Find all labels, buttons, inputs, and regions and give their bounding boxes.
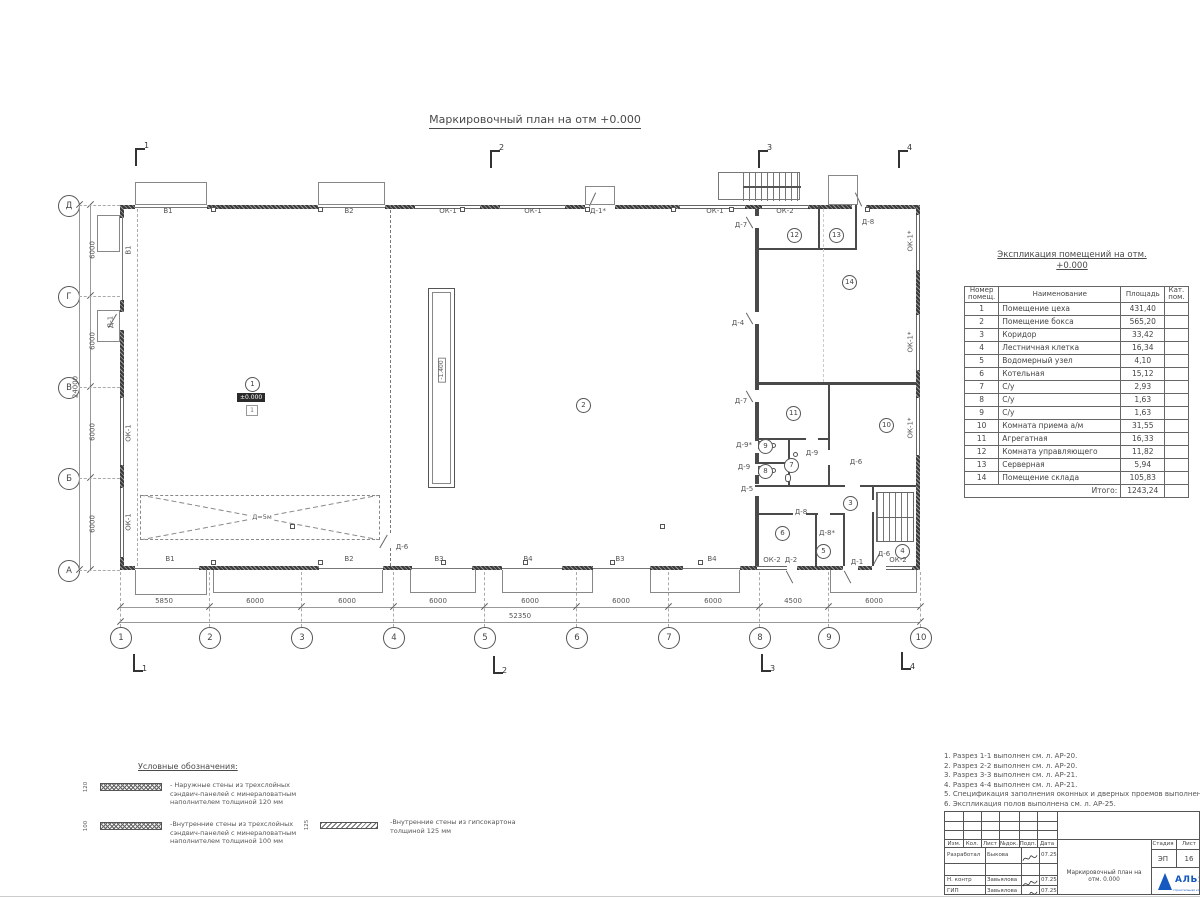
inspection-pit-inner — [432, 292, 451, 484]
note-item: 1. Разрез 1-1 выполнен см. л. АР-20. — [944, 752, 1200, 762]
opening-label: ОК-1 — [126, 513, 133, 530]
gate — [122, 218, 123, 300]
opening-label: ОК-1* — [908, 231, 915, 252]
wall-segment — [757, 513, 793, 515]
cell-num: 13 — [965, 458, 999, 471]
total-value: 1243,24 — [1121, 484, 1165, 497]
window — [757, 566, 787, 570]
column-marker — [671, 207, 676, 212]
cell-area: 105,83 — [1121, 471, 1165, 484]
legend-dim: 100 — [83, 821, 89, 832]
opening-label: Д-5 — [741, 486, 753, 493]
wall-segment — [207, 205, 318, 209]
opening-label: Д-1* — [590, 208, 606, 215]
cell-name: Комната приема а/м — [999, 419, 1121, 432]
wall-segment — [755, 382, 916, 385]
tb-col-label: №док. — [1000, 841, 1018, 847]
dashed-line — [137, 209, 138, 566]
opening-label: В3 — [615, 556, 624, 563]
wall-segment — [866, 205, 920, 209]
tb-line — [945, 863, 1057, 864]
legend-swatch-ext-wall — [100, 783, 162, 791]
wall-segment — [755, 324, 759, 390]
tb-name: Быкова — [987, 852, 1008, 858]
opening-label: ОК-1 — [706, 208, 723, 215]
dim-line-total — [120, 622, 920, 623]
room-number: 8 — [758, 464, 773, 479]
grid-extension — [79, 478, 120, 479]
wall-segment — [120, 330, 124, 398]
grid-bubble-col: 6 — [566, 627, 588, 649]
grid-extension — [920, 572, 921, 627]
grid-extension — [79, 205, 120, 206]
tb-line — [985, 847, 986, 895]
cell-num: 4 — [965, 341, 999, 354]
wall-segment — [755, 228, 759, 312]
room-number: 11 — [786, 406, 801, 421]
dim-label: 5850 — [155, 598, 173, 605]
cell-num: 3 — [965, 328, 999, 341]
grid-bubble-col: 3 — [291, 627, 313, 649]
wall-segment — [755, 496, 759, 566]
gate — [683, 568, 740, 569]
wall-segment — [383, 566, 412, 570]
tb-line — [945, 885, 1057, 886]
opening-label: В4 — [523, 556, 532, 563]
canopy — [318, 182, 385, 205]
cell-cat — [1165, 406, 1188, 419]
wall-segment — [120, 300, 124, 312]
legend-dim: 120 — [83, 782, 89, 793]
tb-sheet-label: Лист — [1182, 841, 1196, 847]
dim-label: 6000 — [246, 598, 264, 605]
tb-stage-value: ЭП — [1158, 855, 1168, 863]
wall-segment — [818, 205, 820, 250]
table-header-row: Номер помещ. Наименование Площадь Кат. п… — [965, 287, 1189, 303]
grid-bubble-row: Б — [58, 468, 80, 490]
cell-cat — [1165, 471, 1188, 484]
dim-label: 6000 — [90, 332, 97, 350]
stair-landing — [719, 173, 744, 201]
grid-extension — [759, 572, 760, 627]
grid-extension — [484, 572, 485, 627]
apron — [650, 570, 740, 593]
table-total-row: Итого:1243,24 — [965, 484, 1189, 497]
cell-area: 15,12 — [1121, 367, 1165, 380]
grid-extension — [209, 572, 210, 627]
cell-cat — [1165, 315, 1188, 328]
opening-label: ОК-1 — [126, 424, 133, 441]
cell-area: 1,63 — [1121, 406, 1165, 419]
column-marker — [460, 207, 465, 212]
level-tag: 1 — [246, 405, 258, 416]
opening-label: Д-4 — [732, 320, 744, 327]
table-row: 8С/у1,63 — [965, 393, 1189, 406]
tb-line — [1057, 812, 1058, 895]
room-number: 14 — [842, 275, 857, 290]
cell-area: 33,42 — [1121, 328, 1165, 341]
section-label: 1 — [142, 664, 147, 673]
table-row: 1Помещение цеха431,40 — [965, 302, 1189, 315]
grid-bubble-col: 10 — [910, 627, 932, 649]
cell-cat — [1165, 432, 1188, 445]
pit-width-label: Д=5м — [250, 514, 274, 521]
cell-name: Котельная — [999, 367, 1121, 380]
cell-area: 5,94 — [1121, 458, 1165, 471]
tb-role: Н. контр — [947, 877, 972, 883]
window — [916, 315, 920, 370]
signature — [1022, 849, 1038, 868]
grid-bubble-col: 9 — [818, 627, 840, 649]
tb-name: Завьялова — [987, 877, 1017, 883]
opening-label: Д-9 — [806, 450, 818, 457]
opening-label: Д-6 — [850, 459, 862, 466]
legend-title: Условные обозначения: — [138, 762, 238, 771]
explication-title: Экспликация помещений на отм. +0.000 — [960, 250, 1184, 272]
staircase-landing-line — [876, 517, 914, 518]
note-item: 6. Экспликация полов выполнена см. л. АР… — [944, 800, 1200, 810]
note-item: 3. Разрез 3-3 выполнен см. л. АР-21. — [944, 771, 1200, 781]
wall-segment — [872, 512, 874, 566]
tb-line — [1151, 867, 1200, 868]
column-marker — [211, 207, 216, 212]
tb-doc-title: Маркировочный план на отм. 0.000 — [1060, 870, 1148, 884]
wall-segment — [120, 205, 124, 218]
level-mark: ±0.000 — [237, 393, 265, 402]
cell-area: 565,20 — [1121, 315, 1165, 328]
legend-text: - Наружные стены из трехслойных сэндвич-… — [170, 781, 296, 807]
grid-bubble-col: 8 — [749, 627, 771, 649]
cell-name: Лестничная клетка — [999, 341, 1121, 354]
dashed-line — [823, 209, 824, 382]
cell-num: 1 — [965, 302, 999, 315]
cell-area: 431,40 — [1121, 302, 1165, 315]
tb-col-label: Подп. — [1020, 841, 1037, 847]
opening-label: Д-8* — [819, 530, 835, 537]
porch — [97, 215, 120, 252]
cell-name: Коридор — [999, 328, 1121, 341]
grid-extension — [79, 296, 120, 297]
cell-num: 2 — [965, 315, 999, 328]
cell-name: Серверная — [999, 458, 1121, 471]
section-marker — [490, 150, 492, 168]
wall-segment — [855, 205, 857, 250]
door-leaf — [746, 313, 753, 325]
section-label: 2 — [499, 143, 504, 152]
legend-text: -Внутренние стены из трехслойных сэндвич… — [170, 820, 296, 846]
grid-bubble-col: 2 — [199, 627, 221, 649]
dim-line-bottom — [120, 607, 920, 608]
drawing-sheet: Маркировочный план на отм +0.000 Д Г В Б… — [0, 0, 1200, 900]
cell-cat — [1165, 419, 1188, 432]
tb-line — [945, 830, 1057, 831]
section-label: 3 — [770, 664, 775, 673]
tb-line — [945, 839, 1200, 840]
tb-name: Завьялова — [987, 888, 1017, 894]
cell-cat — [1165, 328, 1188, 341]
dim-label: 6000 — [90, 515, 97, 533]
wall-segment — [472, 566, 502, 570]
grid-bubble-row: Г — [58, 286, 80, 308]
wall-segment — [745, 205, 762, 209]
apron — [213, 570, 383, 593]
cell-area: 16,34 — [1121, 341, 1165, 354]
cell-area: 2,93 — [1121, 380, 1165, 393]
opening-label: ОК-2 — [776, 208, 793, 215]
page-title: Маркировочный план на отм +0.000 — [395, 108, 675, 129]
tb-role: ГИП — [947, 888, 959, 894]
wall-segment — [120, 557, 124, 570]
opening-label: В1 — [126, 245, 133, 254]
room-number: 5 — [816, 544, 831, 559]
tb-col-label: Дата — [1040, 841, 1054, 847]
wall-segment — [755, 248, 855, 250]
column-marker — [318, 207, 323, 212]
table-row: 2Помещение бокса565,20 — [965, 315, 1189, 328]
external-stair — [718, 172, 800, 200]
opening-label: В1 — [165, 556, 174, 563]
opening-label: ОК-2 — [889, 557, 906, 564]
cell-name: С/у — [999, 380, 1121, 393]
room-number: 13 — [829, 228, 844, 243]
tb-line — [1176, 839, 1177, 867]
opening-label: Д-7 — [735, 222, 747, 229]
cell-area: 4,10 — [1121, 354, 1165, 367]
cell-name: Помещение склада — [999, 471, 1121, 484]
column-marker — [660, 524, 665, 529]
dim-label: 6000 — [90, 423, 97, 441]
wall-segment — [860, 485, 916, 487]
page-title-text: Маркировочный план на отм +0.000 — [429, 113, 641, 129]
opening-label: ОК-1* — [908, 332, 915, 353]
cell-cat — [1165, 458, 1188, 471]
section-label: 2 — [502, 666, 507, 675]
total-label: Итого: — [965, 484, 1121, 497]
table-row: 6Котельная15,12 — [965, 367, 1189, 380]
tb-col-label: Кол. — [966, 841, 979, 847]
tb-date: 07.25 — [1041, 852, 1057, 858]
cell-area: 31,55 — [1121, 419, 1165, 432]
tb-col-label: Изм. — [948, 841, 961, 847]
tb-line — [1151, 849, 1200, 850]
opening-label: ОК-1 — [524, 208, 541, 215]
dim-label: 6000 — [429, 598, 447, 605]
toilet-icon — [785, 474, 791, 482]
section-marker — [898, 150, 900, 168]
section-label: 3 — [767, 143, 772, 152]
opening-label: В2 — [344, 556, 353, 563]
tb-stage-label: Стадия — [1152, 841, 1173, 847]
dim-label: 4500 — [784, 598, 802, 605]
wall-segment — [815, 513, 817, 566]
wall-segment — [828, 382, 830, 450]
gate — [319, 568, 383, 569]
cell-cat — [1165, 380, 1188, 393]
door-leaf — [786, 571, 793, 584]
legend-swatch-int-wall — [100, 822, 162, 830]
wall-segment — [916, 370, 920, 398]
company-tagline: строительная компания — [1173, 888, 1200, 892]
cell-name: Агрегатная — [999, 432, 1121, 445]
opening-label: В1 — [163, 208, 172, 215]
dim-label: 6000 — [612, 598, 630, 605]
opening-label: Д-8 — [862, 219, 874, 226]
cell-num: 8 — [965, 393, 999, 406]
gate — [412, 568, 472, 569]
table-row: 10Комната приема а/м31,55 — [965, 419, 1189, 432]
cell-name: Помещение цеха — [999, 302, 1121, 315]
dim-label-total: 24000 — [73, 376, 80, 398]
opening-label: В4 — [707, 556, 716, 563]
window — [916, 398, 920, 455]
grid-extension — [79, 387, 120, 388]
wall-segment — [916, 455, 920, 570]
table-row: 4Лестничная клетка16,34 — [965, 341, 1189, 354]
wall-segment — [843, 513, 845, 566]
signature — [1022, 885, 1038, 895]
pit-level-label: -1.400 — [438, 357, 446, 382]
section-label: 4 — [910, 662, 915, 671]
col-header: Площадь — [1121, 287, 1165, 303]
cell-name: С/у — [999, 393, 1121, 406]
company-logo-icon — [1158, 873, 1172, 890]
cell-cat — [1165, 445, 1188, 458]
col-header: Номер помещ. — [965, 287, 999, 303]
apron — [830, 570, 917, 593]
cell-name: Комната управляющего — [999, 445, 1121, 458]
cell-cat — [1165, 302, 1188, 315]
window — [120, 398, 124, 465]
title-block: Изм. Кол. Лист №док. Подп. Дата Разработ… — [944, 811, 1200, 895]
cell-num: 6 — [965, 367, 999, 380]
cell-num: 14 — [965, 471, 999, 484]
table-row: 12Комната управляющего11,82 — [965, 445, 1189, 458]
section-label: 4 — [907, 143, 912, 152]
tb-line — [945, 847, 1057, 848]
opening-label: Д-7 — [735, 398, 747, 405]
section-marker — [758, 150, 760, 168]
opening-label: Д-6 — [396, 544, 408, 551]
cell-area: 16,33 — [1121, 432, 1165, 445]
grid-bubble-col: 5 — [474, 627, 496, 649]
wall-segment — [755, 209, 759, 216]
cell-name: Водомерный узел — [999, 354, 1121, 367]
cell-num: 5 — [965, 354, 999, 367]
cell-area: 1,63 — [1121, 393, 1165, 406]
opening-label: В3 — [434, 556, 443, 563]
room-number: 12 — [787, 228, 802, 243]
wall-segment — [872, 485, 874, 500]
dim-label: 6000 — [338, 598, 356, 605]
note-item: 4. Разрез 4-4 выполнен см. л. АР-21. — [944, 781, 1200, 791]
wall-segment — [755, 402, 759, 441]
cell-name: Помещение бокса — [999, 315, 1121, 328]
sink-icon — [793, 452, 798, 457]
cell-cat — [1165, 393, 1188, 406]
room-number: 9 — [758, 439, 773, 454]
tb-line — [1039, 847, 1040, 895]
column-marker — [318, 560, 323, 565]
opening-label: Д-1 — [108, 316, 115, 328]
dim-label: 6000 — [521, 598, 539, 605]
opening-label: Д-8 — [795, 509, 807, 516]
dim-label: 6000 — [90, 241, 97, 259]
legend-swatch-gypsum-wall — [320, 822, 378, 829]
col-header: Наименование — [999, 287, 1121, 303]
apron — [410, 570, 476, 593]
gate — [135, 568, 199, 569]
notes-list: 1. Разрез 1-1 выполнен см. л. АР-20. 2. … — [944, 752, 1200, 809]
wall-segment — [755, 475, 759, 484]
column-marker — [610, 560, 615, 565]
opening-label: ОК-1* — [908, 418, 915, 439]
legend-dim: 125 — [304, 820, 310, 831]
gate — [593, 568, 650, 569]
cell-area: 11,82 — [1121, 445, 1165, 458]
cell-num: 9 — [965, 406, 999, 419]
opening-label: ОК-2 — [763, 557, 780, 564]
apron — [502, 570, 593, 593]
legend-text: -Внутренние стены из гипсокартона толщин… — [390, 818, 516, 835]
opening-label: Д-9* — [736, 442, 752, 449]
cell-num: 12 — [965, 445, 999, 458]
opening-label: В2 — [344, 208, 353, 215]
cell-num: 7 — [965, 380, 999, 393]
column-marker — [698, 560, 703, 565]
cell-cat — [1165, 341, 1188, 354]
tb-line — [945, 875, 1057, 876]
wall-segment — [565, 205, 585, 209]
porch — [828, 175, 858, 205]
table-row: 14Помещение склада105,83 — [965, 471, 1189, 484]
window — [120, 488, 124, 557]
wall-segment — [916, 270, 920, 315]
section-marker — [135, 148, 137, 166]
tb-sheet-value: 16 — [1185, 855, 1194, 863]
room-number: 1 — [245, 377, 260, 392]
grid-bubble-col: 4 — [383, 627, 405, 649]
apron — [135, 570, 207, 595]
note-item: 5. Спецификация заполнения оконных и две… — [944, 790, 1200, 800]
canopy — [135, 182, 207, 205]
company-name: АЛЬЯ — [1175, 875, 1200, 885]
porch — [585, 186, 615, 205]
grid-extension — [393, 572, 394, 627]
room-number: 3 — [843, 496, 858, 511]
gate — [502, 568, 562, 569]
cell-cat — [1165, 484, 1188, 497]
wall-segment — [808, 205, 852, 209]
wall-segment — [828, 465, 830, 485]
column-marker — [211, 560, 216, 565]
opening-label: Д-9 — [738, 464, 750, 471]
grid-extension — [828, 572, 829, 627]
stair-rail — [743, 186, 801, 188]
door-leaf — [379, 535, 387, 548]
wall-segment — [480, 205, 500, 209]
section-label: 1 — [144, 141, 149, 150]
grid-extension — [120, 572, 121, 627]
table-row: 5Водомерный узел4,10 — [965, 354, 1189, 367]
cell-cat — [1165, 367, 1188, 380]
room-number: 10 — [879, 418, 894, 433]
room-number: 6 — [775, 526, 790, 541]
dim-label: 6000 — [865, 598, 883, 605]
sheet-edge — [0, 896, 1200, 897]
column-marker — [729, 207, 734, 212]
grid-extension — [79, 570, 120, 571]
cell-name: С/у — [999, 406, 1121, 419]
